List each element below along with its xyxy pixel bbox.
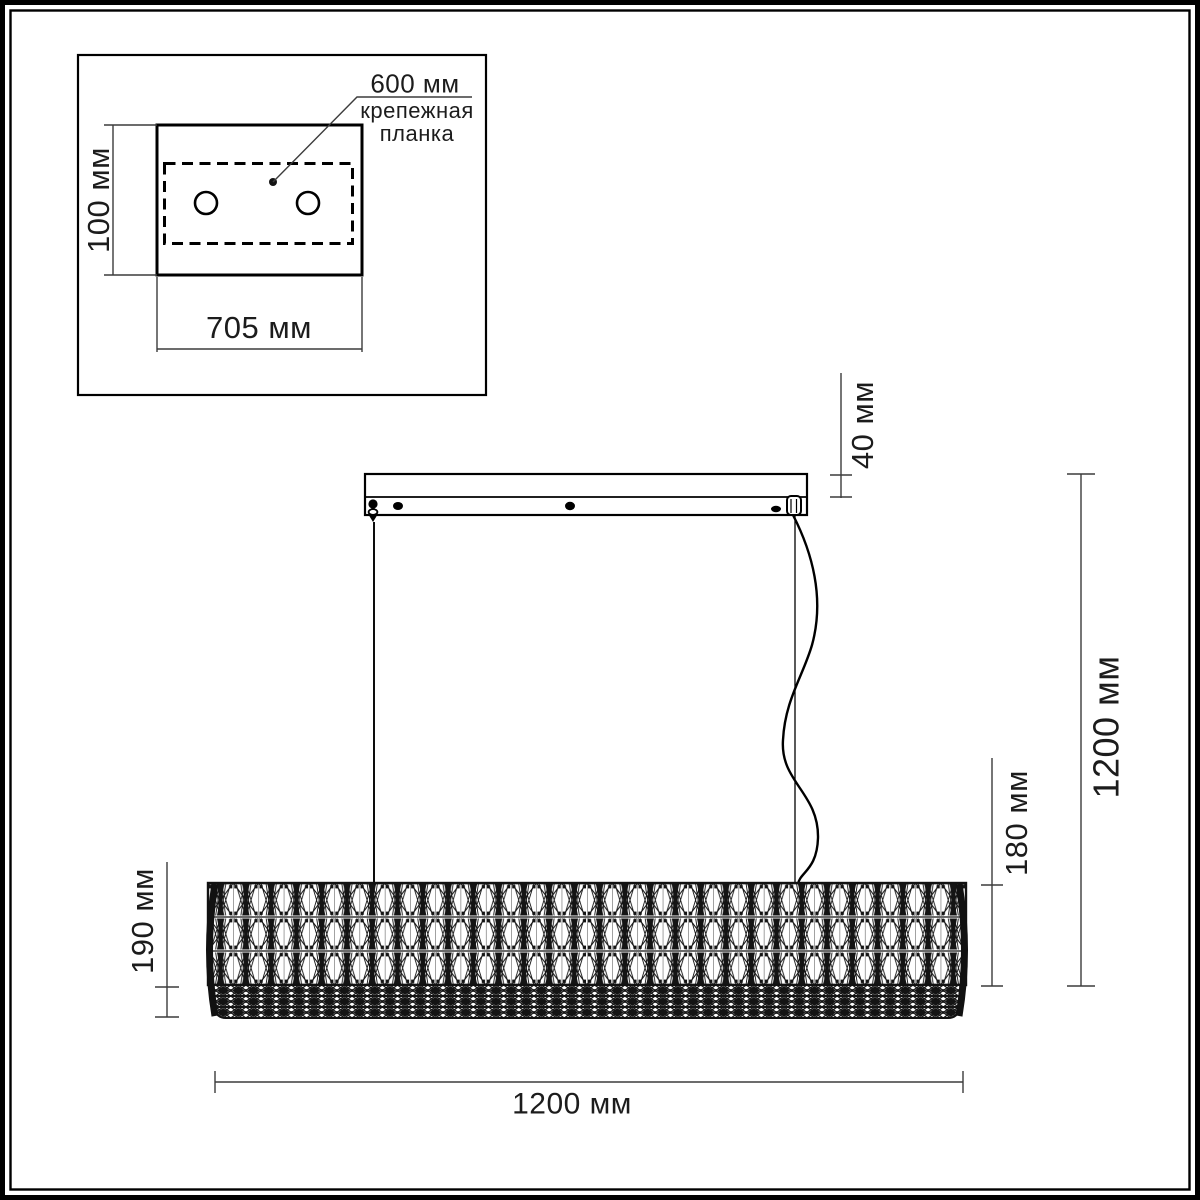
- shade-diameter-dim-label: 190 мм: [127, 868, 159, 974]
- inset-height-dim-label: 100 мм: [83, 147, 115, 253]
- mounting-plate-outline: [157, 125, 362, 275]
- inset-width-dim-label: 705 мм: [206, 312, 312, 344]
- drawing-canvas: [0, 0, 1200, 1200]
- shade-height-dim-label: 180 мм: [1001, 770, 1033, 876]
- crystal-shade-bottom-cap: [211, 985, 963, 1018]
- mounting-hole-right: [297, 192, 319, 214]
- mounting-hole-left: [195, 192, 217, 214]
- cord-grip: [787, 496, 801, 515]
- screw-dot: [393, 502, 403, 510]
- lamp-dimension-drawing: 600 мм крепежная планка 100 мм 705 мм 40…: [0, 0, 1200, 1200]
- cable-gripper: [368, 499, 377, 522]
- ceiling-canopy: [365, 474, 807, 522]
- callout-value-label: 600 мм: [370, 70, 459, 97]
- crystal-shade-main-band: [208, 883, 966, 985]
- screw-dot: [771, 506, 781, 512]
- screw-dot: [565, 502, 575, 510]
- power-cord-wavy: [783, 515, 818, 884]
- overall-height-dim-label: 1200 мм: [1087, 655, 1124, 798]
- crystal-shade: [208, 883, 966, 1018]
- overall-length-dim-label: 1200 мм: [512, 1088, 632, 1119]
- callout-text-label: крепежная планка: [350, 100, 484, 146]
- canopy-height-dim-label: 40 мм: [847, 381, 879, 469]
